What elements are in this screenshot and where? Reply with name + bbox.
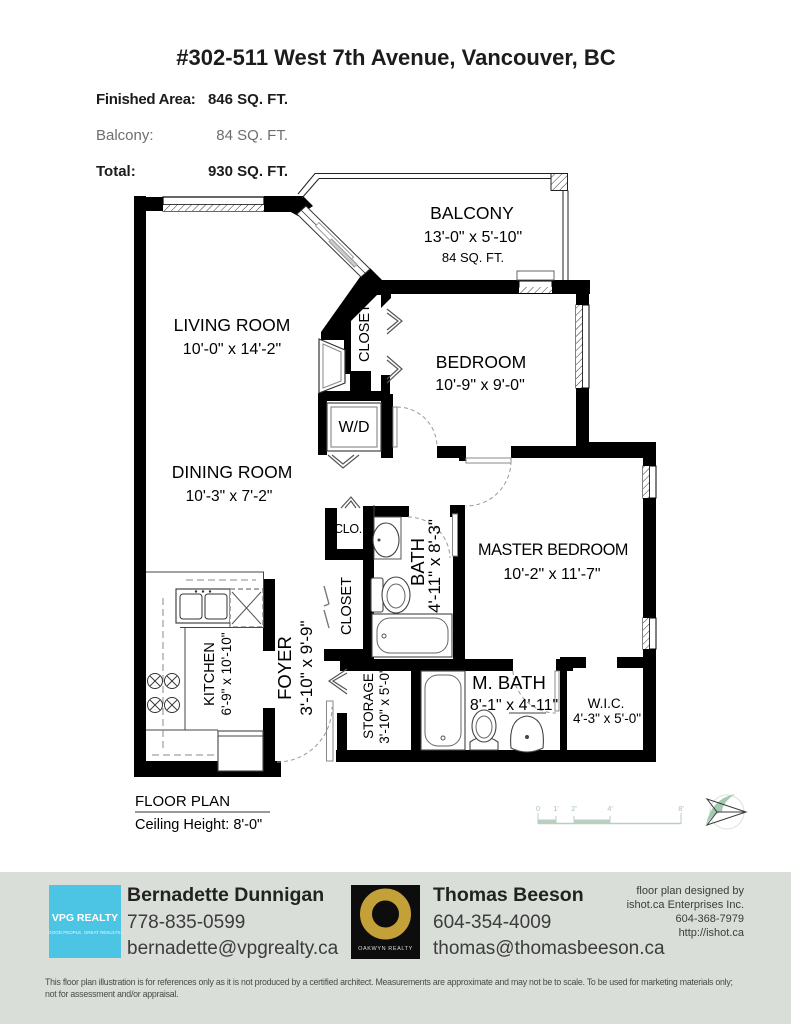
svg-text:http://ishot.ca: http://ishot.ca xyxy=(679,927,745,939)
svg-text:M. BATH: M. BATH xyxy=(472,672,546,693)
svg-text:604-354-4009: 604-354-4009 xyxy=(433,912,551,933)
svg-text:10'-3" x 7'-2": 10'-3" x 7'-2" xyxy=(186,488,273,505)
svg-text:MASTER BEDROOM: MASTER BEDROOM xyxy=(478,541,628,559)
svg-text:floor plan designed by: floor plan designed by xyxy=(636,885,744,897)
svg-text:3'-10" x 9'-9": 3'-10" x 9'-9" xyxy=(297,620,316,715)
svg-text:CLO.: CLO. xyxy=(334,522,362,536)
svg-text:8': 8' xyxy=(678,804,684,813)
svg-text:Ceiling Height: 8'-0": Ceiling Height: 8'-0" xyxy=(135,817,262,833)
svg-text:FLOOR PLAN: FLOOR PLAN xyxy=(135,793,230,810)
svg-text:LIVING ROOM: LIVING ROOM xyxy=(174,315,291,335)
svg-text:778-835-0599: 778-835-0599 xyxy=(127,912,245,933)
svg-text:STORAGE: STORAGE xyxy=(361,673,376,739)
svg-text:BALCONY: BALCONY xyxy=(430,203,514,223)
svg-text:CLOSET: CLOSET xyxy=(357,304,373,362)
svg-text:930 SQ. FT.: 930 SQ. FT. xyxy=(208,163,288,180)
svg-text:0: 0 xyxy=(536,804,540,813)
svg-text:1': 1' xyxy=(553,804,559,813)
svg-text:6'-9" x 10'-10": 6'-9" x 10'-10" xyxy=(219,632,234,715)
svg-text:84 SQ. FT.: 84 SQ. FT. xyxy=(216,127,288,144)
svg-text:10'-0" x 14'-2": 10'-0" x 14'-2" xyxy=(183,341,281,358)
svg-text:thomas@thomasbeeson.ca: thomas@thomasbeeson.ca xyxy=(433,938,665,959)
svg-text:13'-0" x 5'-10": 13'-0" x 5'-10" xyxy=(424,229,522,246)
svg-text:#302-511 West 7th Avenue, Vanc: #302-511 West 7th Avenue, Vancouver, BC xyxy=(176,45,616,70)
svg-text:604-368-7979: 604-368-7979 xyxy=(675,913,744,925)
svg-text:3'-10" x 5'-0": 3'-10" x 5'-0" xyxy=(377,668,392,744)
svg-text:84 SQ. FT.: 84 SQ. FT. xyxy=(442,250,504,265)
svg-text:Thomas Beeson: Thomas Beeson xyxy=(433,884,584,906)
svg-text:Finished Area:: Finished Area: xyxy=(96,91,195,108)
svg-text:846 SQ. FT.: 846 SQ. FT. xyxy=(208,91,288,108)
svg-text:ishot.ca Enterprises Inc.: ishot.ca Enterprises Inc. xyxy=(627,899,744,911)
svg-text:10'-2" x 11'-7": 10'-2" x 11'-7" xyxy=(503,566,600,583)
svg-text:OAKWYN REALTY: OAKWYN REALTY xyxy=(358,946,413,952)
svg-text:2': 2' xyxy=(571,804,577,813)
svg-text:8'-1" x 4'-11": 8'-1" x 4'-11" xyxy=(470,697,558,714)
svg-text:KITCHEN: KITCHEN xyxy=(202,642,218,706)
svg-text:bernadette@vpgrealty.ca: bernadette@vpgrealty.ca xyxy=(127,938,339,959)
svg-text:not for assessment and/or appr: not for assessment and/or appraisal. xyxy=(45,989,178,999)
svg-text:4': 4' xyxy=(607,804,613,813)
svg-text:FOYER: FOYER xyxy=(274,636,295,700)
svg-text:4'-3" x 5'-0": 4'-3" x 5'-0" xyxy=(573,711,641,726)
svg-text:GOOD PEOPLE. GREAT RESULTS.: GOOD PEOPLE. GREAT RESULTS. xyxy=(48,930,122,935)
svg-text:W.I.C.: W.I.C. xyxy=(588,696,625,711)
svg-text:CLOSET: CLOSET xyxy=(339,577,355,635)
svg-text:4'-11" x 8'-3": 4'-11" x 8'-3" xyxy=(425,519,444,613)
svg-text:Balcony:: Balcony: xyxy=(96,127,154,144)
svg-text:DINING ROOM: DINING ROOM xyxy=(172,462,293,482)
svg-text:VPG REALTY: VPG REALTY xyxy=(52,912,118,924)
svg-text:Bernadette Dunnigan: Bernadette Dunnigan xyxy=(127,884,324,906)
svg-text:W/D: W/D xyxy=(338,419,369,436)
svg-text:Total:: Total: xyxy=(96,163,136,180)
svg-text:This floor plan illustration i: This floor plan illustration is for refe… xyxy=(45,977,733,987)
svg-text:BEDROOM: BEDROOM xyxy=(436,352,526,372)
svg-text:10'-9" x 9'-0": 10'-9" x 9'-0" xyxy=(435,377,525,394)
